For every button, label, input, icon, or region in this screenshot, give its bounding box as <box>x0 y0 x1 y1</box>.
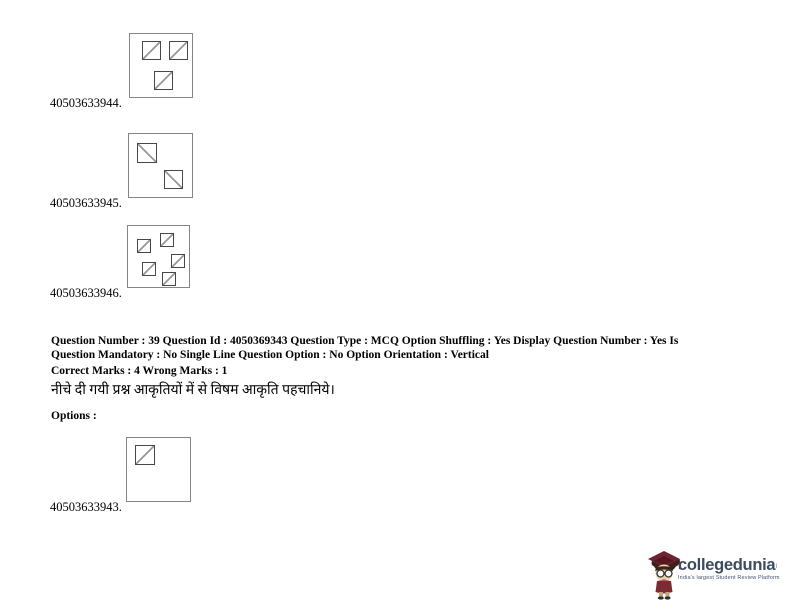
question-text-hindi: नीचे दी गयी प्रश्न आकृतियों में से विषम … <box>51 381 335 401</box>
option-id-label: 40503633943. <box>50 500 122 514</box>
brand-name: collegeduniaı <box>678 557 780 574</box>
option-figure-box <box>129 33 193 98</box>
inner-square-falling-diagonal <box>137 143 157 163</box>
option-figure-box <box>126 437 191 502</box>
option-figure-box <box>128 133 193 198</box>
inner-square-rising-diagonal <box>137 239 151 253</box>
inner-square-rising-diagonal <box>154 71 173 90</box>
inner-square-rising-diagonal <box>142 41 161 60</box>
collegedunia-logo: collegeduniaı India's largest Student Re… <box>646 548 788 602</box>
inner-square-falling-diagonal <box>164 170 183 189</box>
option-id-label: 40503633944. <box>50 96 122 110</box>
inner-square-rising-diagonal <box>162 272 176 286</box>
option-id-label: 40503633945. <box>50 196 122 210</box>
inner-square-rising-diagonal <box>169 41 188 60</box>
logo-text: collegeduniaı India's largest Student Re… <box>678 557 780 582</box>
brand-tagline: India's largest Student Review Platform <box>678 575 780 582</box>
option-id-label: 40503633946. <box>50 286 122 300</box>
exam-question-document: 40503633944.40503633945.40503633946.4050… <box>0 0 792 612</box>
metadata-line-1: Question Number : 39 Question Id : 40503… <box>51 334 678 348</box>
option-figure-box <box>127 225 190 288</box>
inner-square-rising-diagonal <box>135 445 155 465</box>
brand-word: collegedunia <box>678 556 775 574</box>
options-heading: Options : <box>51 409 97 423</box>
inner-square-rising-diagonal <box>171 254 185 268</box>
metadata-line-2: Question Mandatory : No Single Line Ques… <box>51 348 678 362</box>
inner-square-rising-diagonal <box>142 262 156 276</box>
question-metadata: Question Number : 39 Question Id : 40503… <box>51 334 678 362</box>
collegedunia-mascot-icon <box>646 548 682 600</box>
marks-line: Correct Marks : 4 Wrong Marks : 1 <box>51 364 227 378</box>
brand-mark: ı <box>775 561 777 570</box>
inner-square-rising-diagonal <box>160 233 174 247</box>
